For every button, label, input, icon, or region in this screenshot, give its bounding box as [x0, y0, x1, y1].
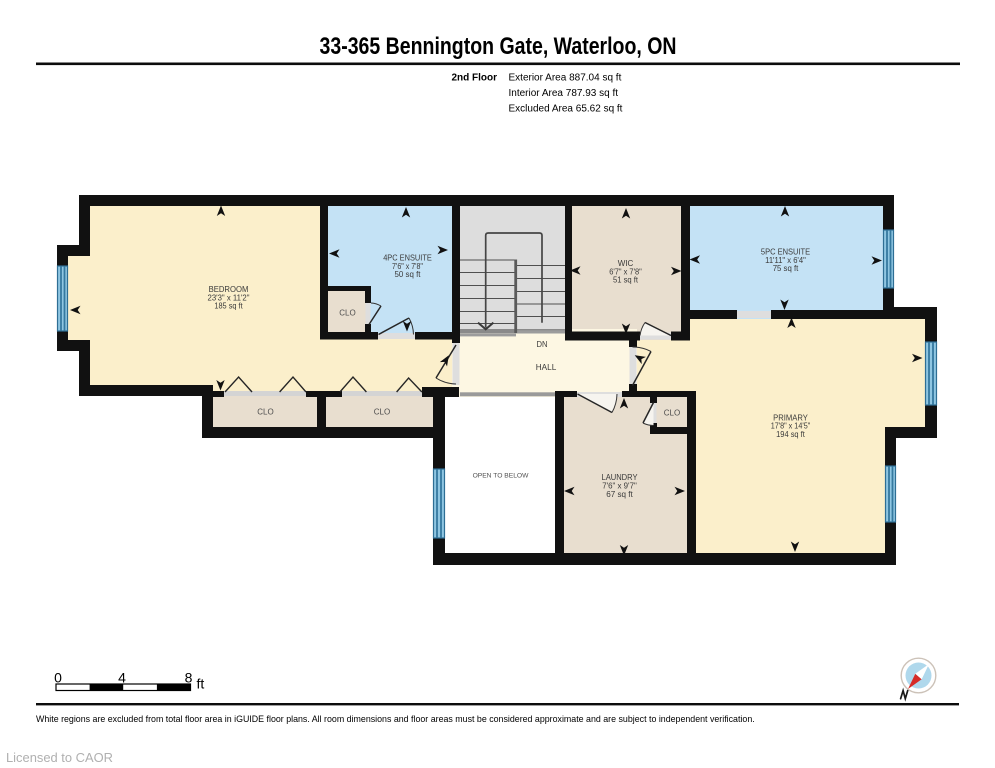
svg-text:HALL: HALL	[536, 362, 557, 372]
svg-text:8: 8	[185, 670, 193, 686]
svg-text:OPEN TO BELOW: OPEN TO BELOW	[473, 473, 530, 480]
svg-text:50 sq ft: 50 sq ft	[395, 269, 422, 279]
svg-text:33-365 Bennington Gate, Waterl: 33-365 Bennington Gate, Waterloo, ON	[320, 33, 677, 60]
svg-text:185 sq ft: 185 sq ft	[214, 301, 243, 311]
svg-text:194 sq ft: 194 sq ft	[776, 429, 805, 439]
svg-text:CLO: CLO	[664, 409, 680, 418]
svg-text:CLO: CLO	[257, 408, 273, 417]
svg-text:0: 0	[54, 670, 62, 686]
svg-text:CLO: CLO	[374, 408, 390, 417]
svg-text:CLO: CLO	[339, 309, 355, 318]
svg-text:Licensed to CAOR: Licensed to CAOR	[6, 750, 113, 765]
svg-text:67 sq ft: 67 sq ft	[606, 489, 633, 499]
svg-text:DN: DN	[537, 339, 548, 349]
svg-text:2nd Floor: 2nd Floor	[451, 73, 497, 84]
svg-text:ft: ft	[197, 676, 205, 692]
svg-text:Exterior Area 887.04 sq ft: Exterior Area 887.04 sq ft	[509, 73, 622, 84]
svg-text:Interior Area 787.93 sq ft: Interior Area 787.93 sq ft	[509, 88, 619, 99]
svg-text:75 sq ft: 75 sq ft	[773, 263, 799, 273]
svg-text:51 sq ft: 51 sq ft	[613, 275, 639, 285]
svg-text:White regions are excluded fro: White regions are excluded from total fl…	[36, 714, 755, 724]
svg-text:Excluded Area 65.62 sq ft: Excluded Area 65.62 sq ft	[509, 104, 623, 115]
svg-text:4: 4	[118, 670, 126, 686]
